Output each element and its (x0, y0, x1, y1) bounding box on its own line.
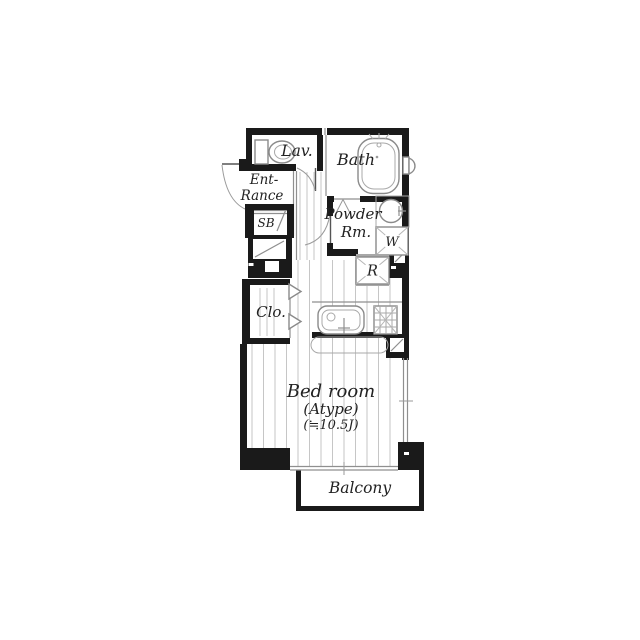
floorplan-drawing: Lav. Bath Ent- Rance SB Powder Rm. W R C… (0, 0, 640, 640)
water-heater-icon (403, 157, 415, 174)
closet-door-icon (289, 284, 301, 329)
floorplan-canvas: Lav. Bath Ent- Rance SB Powder Rm. W R C… (0, 0, 640, 640)
refrigerator-label: R (366, 264, 378, 280)
bath-label: Bath (336, 150, 375, 169)
powder-label-line1: Powder (323, 205, 382, 223)
kitchen-counter (311, 302, 402, 353)
shoebox-label: SB (257, 216, 274, 230)
washer-label: W (385, 235, 400, 250)
balcony-window (290, 462, 398, 475)
entrance-label-line1: Ent- (249, 172, 279, 188)
side-window (399, 358, 413, 442)
bedroom-label-line1: Bed room (286, 381, 375, 402)
bedroom-label-line3: (≒10.5J) (303, 418, 358, 433)
bedroom-label-line2: (Atype) (303, 400, 358, 418)
closet-label: Clo. (256, 303, 286, 321)
hallway-floor-lines (300, 172, 321, 260)
entrance-label-line2: Rance (240, 188, 284, 204)
powder-label-line2: Rm. (340, 223, 371, 241)
lavatory-label: Lav. (280, 142, 312, 160)
balcony-label: Balcony (328, 479, 392, 497)
bedroom-floor-lines (252, 260, 390, 467)
